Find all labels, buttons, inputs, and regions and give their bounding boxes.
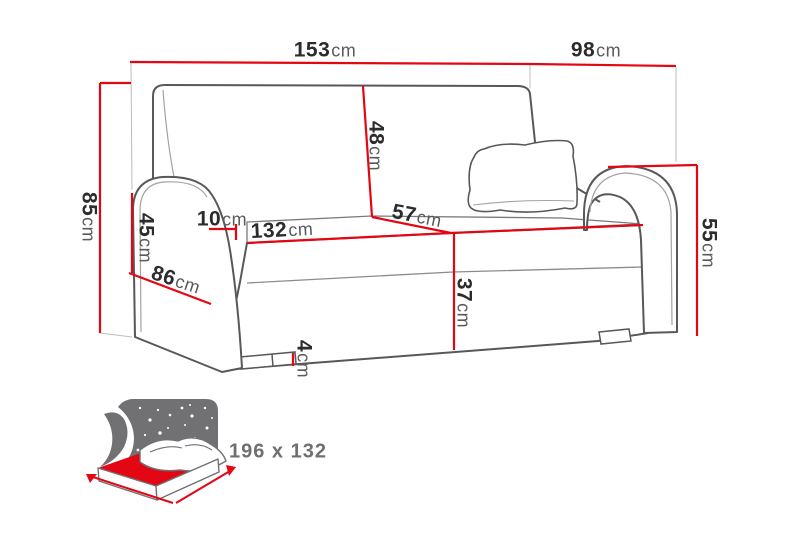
dimension-value: 132 [250,218,288,243]
dimension-total-depth: 98cm [571,40,621,61]
dimension-value: 153 [294,39,331,62]
sofa-dimensions-diagram: 153cm 98cm 85cm 48cm 45cm 10cm 132cm 57c… [0,0,800,533]
dimension-leg-height: 4cm [294,340,315,378]
dimension-value: 55 [698,218,721,242]
dimension-unit: cm [79,217,99,242]
dimension-unit: cm [288,219,314,240]
dimension-seat-height: 37cm [454,278,475,328]
dimension-unit: cm [331,41,356,61]
dimension-unit: cm [222,210,247,230]
dimension-seat-width: 132cm [250,218,314,242]
dimension-unit: cm [699,243,719,268]
dimension-arm-front-height: 55cm [699,218,720,268]
dimension-value: 85 [78,192,101,216]
dimension-unit: cm [366,146,386,171]
dimension-value: 98 [571,39,595,62]
dimension-total-width: 153cm [294,40,357,61]
dimension-unit: cm [454,303,474,328]
dimension-unit: cm [136,238,156,263]
dimension-value: 48 [365,121,388,145]
dimension-value: 57 [390,200,418,227]
dimension-value: 10 [197,208,221,231]
diagram-linework [0,0,800,533]
dimension-value: 37 [453,278,476,302]
pillow [468,141,577,213]
dimension-backrest-height: 48cm [366,121,387,171]
dimension-value: 45 [135,213,158,237]
dimension-value: 4 [293,340,316,352]
sleeping-area-label: 196 x 132 [229,441,327,464]
sofa-bed-function-icon [86,399,236,503]
dimension-total-height: 85cm [79,192,100,242]
dimension-unit: cm [596,41,621,61]
dimension-armrest-height: 45cm [136,213,157,263]
dimension-armrest-width: 10cm [197,209,247,230]
dimension-unit: cm [294,353,314,378]
